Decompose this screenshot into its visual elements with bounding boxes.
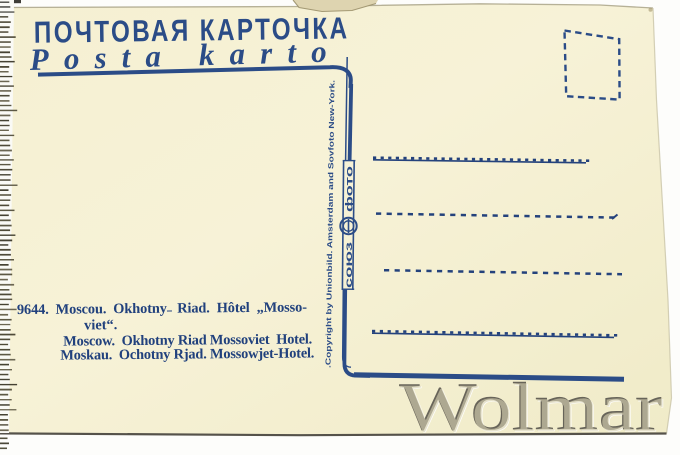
svg-text:ПОЧТОВАЯ КАРТОЧКА: ПОЧТОВАЯ КАРТОЧКА <box>34 12 350 51</box>
svg-text:Wolmar: Wolmar <box>400 370 663 446</box>
svg-text:союз: союз <box>344 242 355 288</box>
svg-text:Moskau. Ochotny Rjad. Mossowj: Moskau. Ochotny Rjad. Mossowjet-Hotel. <box>60 345 314 363</box>
svg-text:фото: фото <box>344 166 356 212</box>
svg-text:9644. Moscou. Okhotny Riad: 9644. Moscou. Okhotny Riad. Hôtel „Mosso… <box>17 299 307 318</box>
svg-text:viet“.: viet“. <box>84 317 117 333</box>
